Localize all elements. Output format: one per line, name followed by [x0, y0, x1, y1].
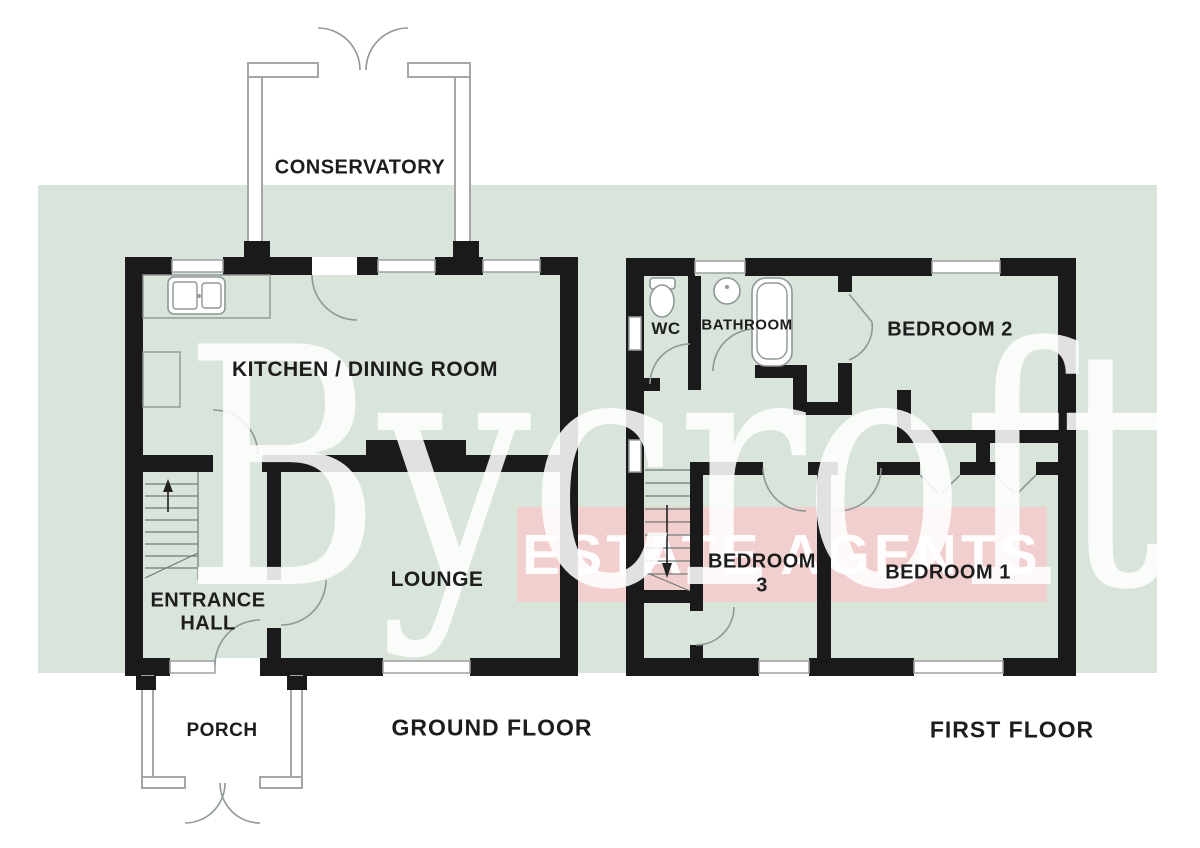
floor-title-ground: GROUND FLOOR [391, 715, 592, 742]
conservatory-kitchen-door [312, 275, 357, 320]
room-label-wc: WC [651, 319, 680, 339]
room-label-entrance-hall-line2: HALL [180, 613, 235, 636]
conservatory-french-doors [318, 28, 360, 70]
room-label-conservatory: CONSERVATORY [275, 157, 445, 180]
room-label-entrance-hall-line1: ENTRANCE [150, 590, 265, 613]
room-label-bedroom3-line1: BEDROOM [708, 551, 816, 574]
porch-doors [185, 783, 225, 823]
stairs-ground-icon [145, 472, 198, 580]
closet-door [696, 607, 734, 645]
room-label-bathroom: BATHROOM [701, 317, 792, 334]
conservatory-structure [244, 28, 479, 260]
kitchen-hall-door [213, 410, 258, 455]
room-label-lounge: LOUNGE [391, 568, 484, 592]
stairs-first-icon [645, 470, 690, 591]
bathroom-door [713, 329, 755, 371]
bedroom3-door [763, 468, 806, 511]
room-label-bedroom3-line2: 3 [756, 575, 768, 598]
room-label-porch: PORCH [186, 720, 257, 742]
cupboard-wall [897, 430, 1058, 443]
room-label-bedroom2: BEDROOM 2 [887, 319, 1013, 342]
floorplan-image: ESTATE AGENTS [0, 0, 1200, 848]
bedroom1-door [838, 468, 881, 511]
chimney-breast [366, 440, 466, 456]
room-label-kitchen-dining: KITCHEN / DINING ROOM [232, 358, 498, 382]
porch-structure [136, 676, 307, 823]
floor-title-first: FIRST FLOOR [930, 717, 1094, 744]
bedroom2-door [849, 294, 872, 322]
kitchen-fixtures [143, 275, 270, 407]
ground-floor-plan [125, 28, 578, 823]
hall-lounge-door [281, 580, 326, 625]
kitchen-cabinet [143, 352, 180, 407]
room-label-bedroom1: BEDROOM 1 [885, 562, 1011, 585]
basin-icon [714, 278, 740, 304]
